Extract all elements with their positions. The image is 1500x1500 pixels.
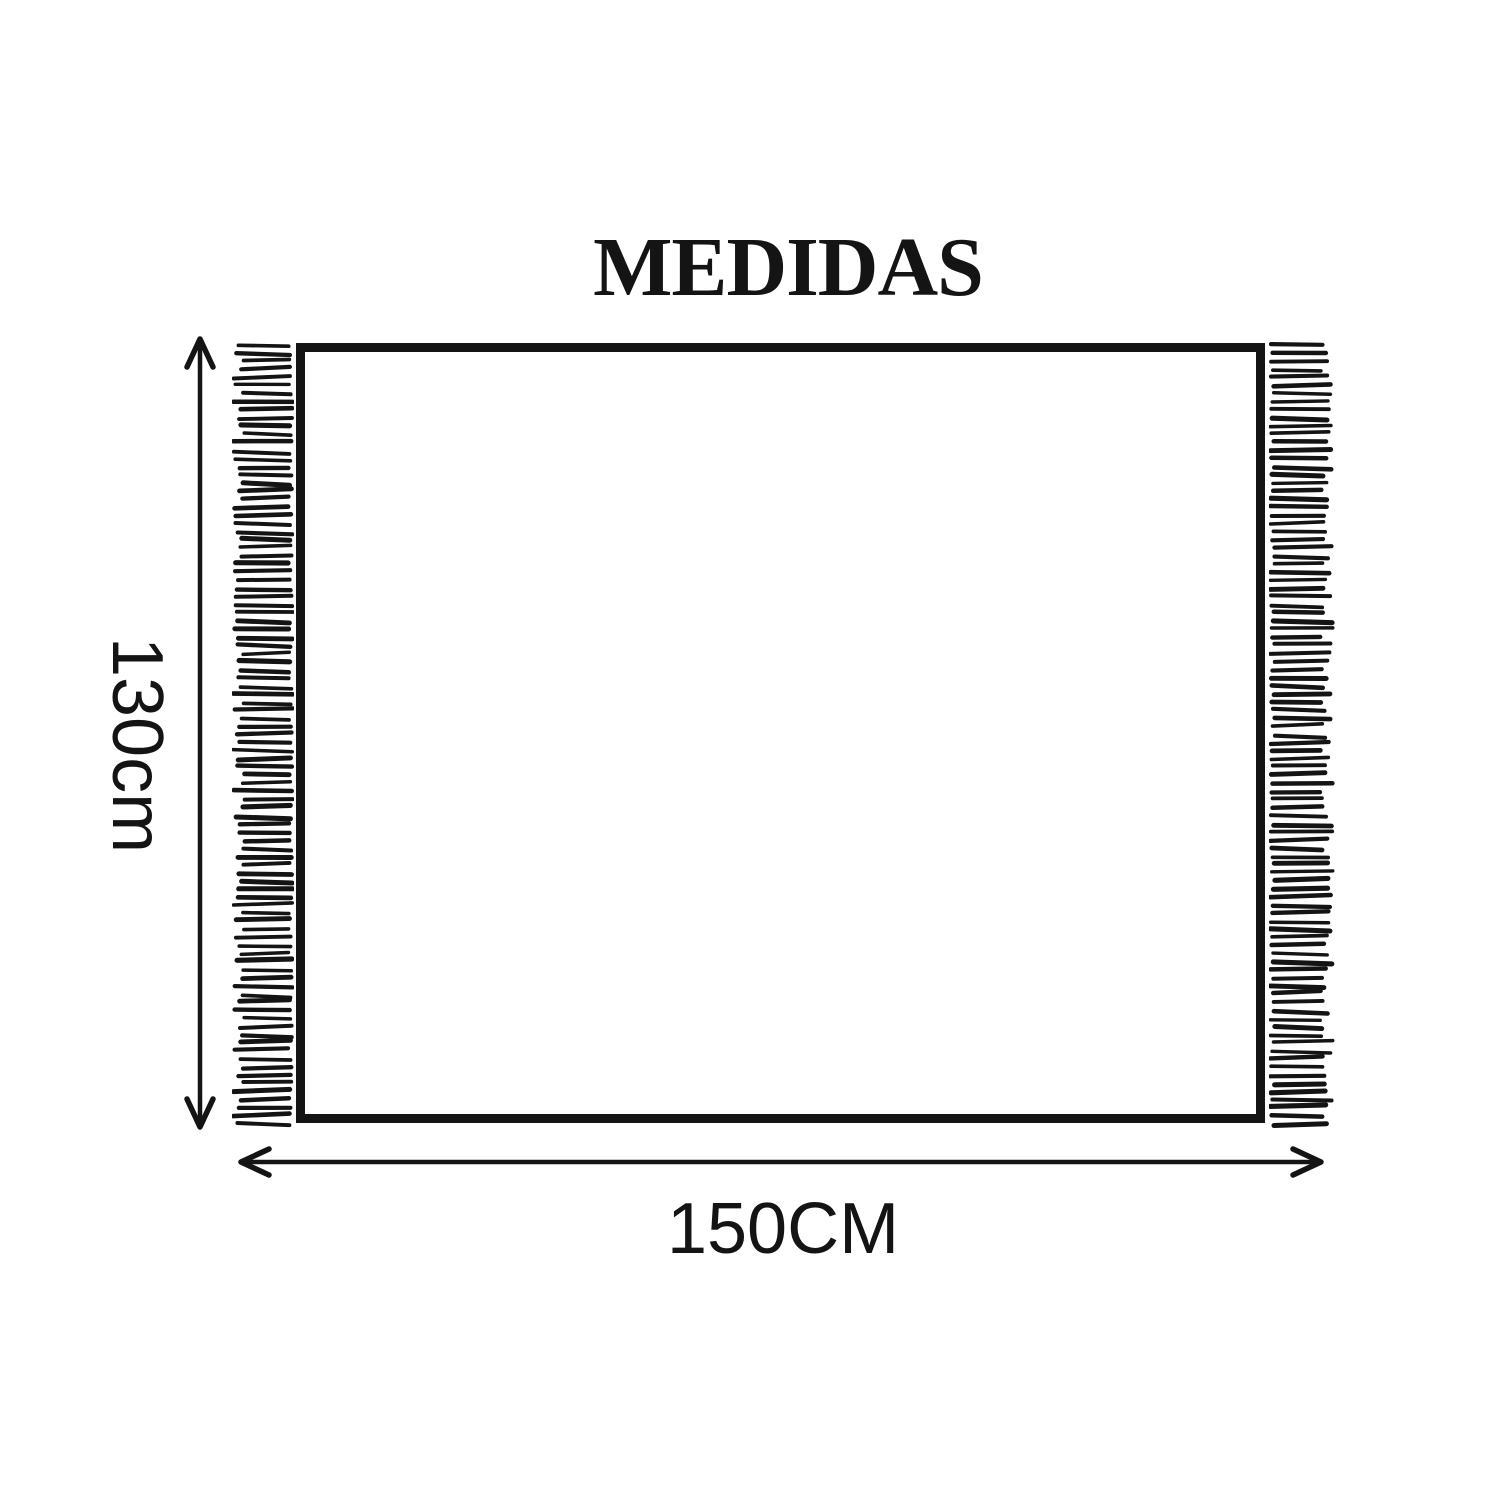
horizontal-dimension-arrow-icon [241,1149,1321,1175]
dimension-arrows-layer [0,0,1500,1500]
measurement-diagram: MEDIDAS 130cm 150CM [0,0,1500,1500]
vertical-dimension-arrow-icon [187,339,213,1127]
width-dimension-label: 150CM [667,1193,899,1265]
height-dimension-label: 130cm [101,637,173,853]
